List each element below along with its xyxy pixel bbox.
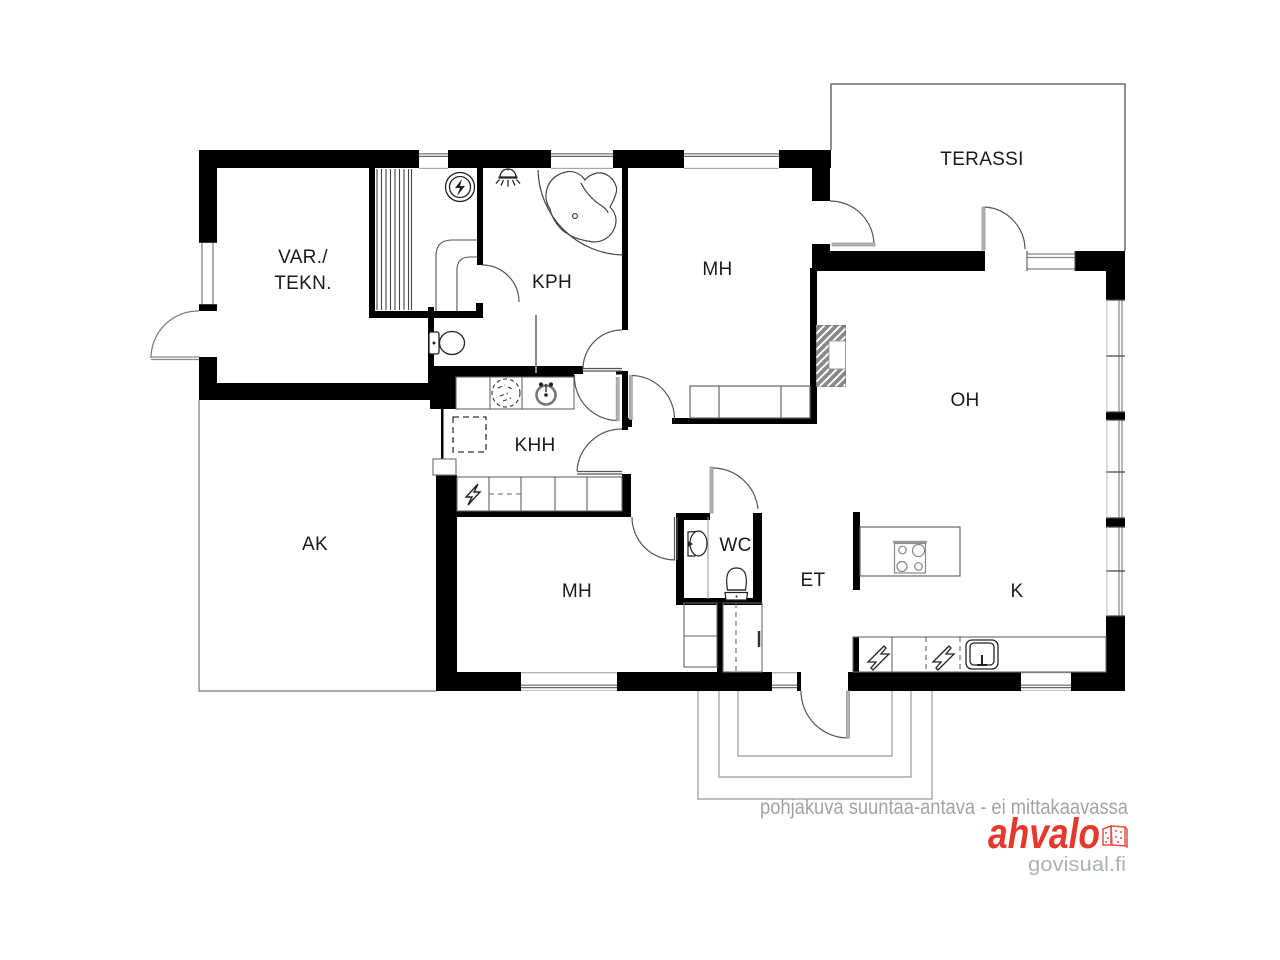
svg-text:AK: AK <box>302 534 328 555</box>
svg-text:govisual.fi: govisual.fi <box>1028 854 1126 876</box>
svg-text:OH: OH <box>950 390 979 411</box>
svg-text:K: K <box>1011 581 1024 602</box>
svg-text:ahvalo: ahvalo <box>988 810 1100 858</box>
svg-text:MH: MH <box>702 259 732 280</box>
svg-text:TERASSI: TERASSI <box>940 149 1023 170</box>
svg-text:WC: WC <box>719 535 751 556</box>
svg-text:ET: ET <box>801 570 826 591</box>
svg-text:VAR./: VAR./ <box>278 247 328 268</box>
svg-text:MH: MH <box>562 581 592 602</box>
svg-text:KHH: KHH <box>514 435 555 456</box>
svg-text:KPH: KPH <box>532 272 572 293</box>
svg-text:TEKN.: TEKN. <box>274 273 331 294</box>
